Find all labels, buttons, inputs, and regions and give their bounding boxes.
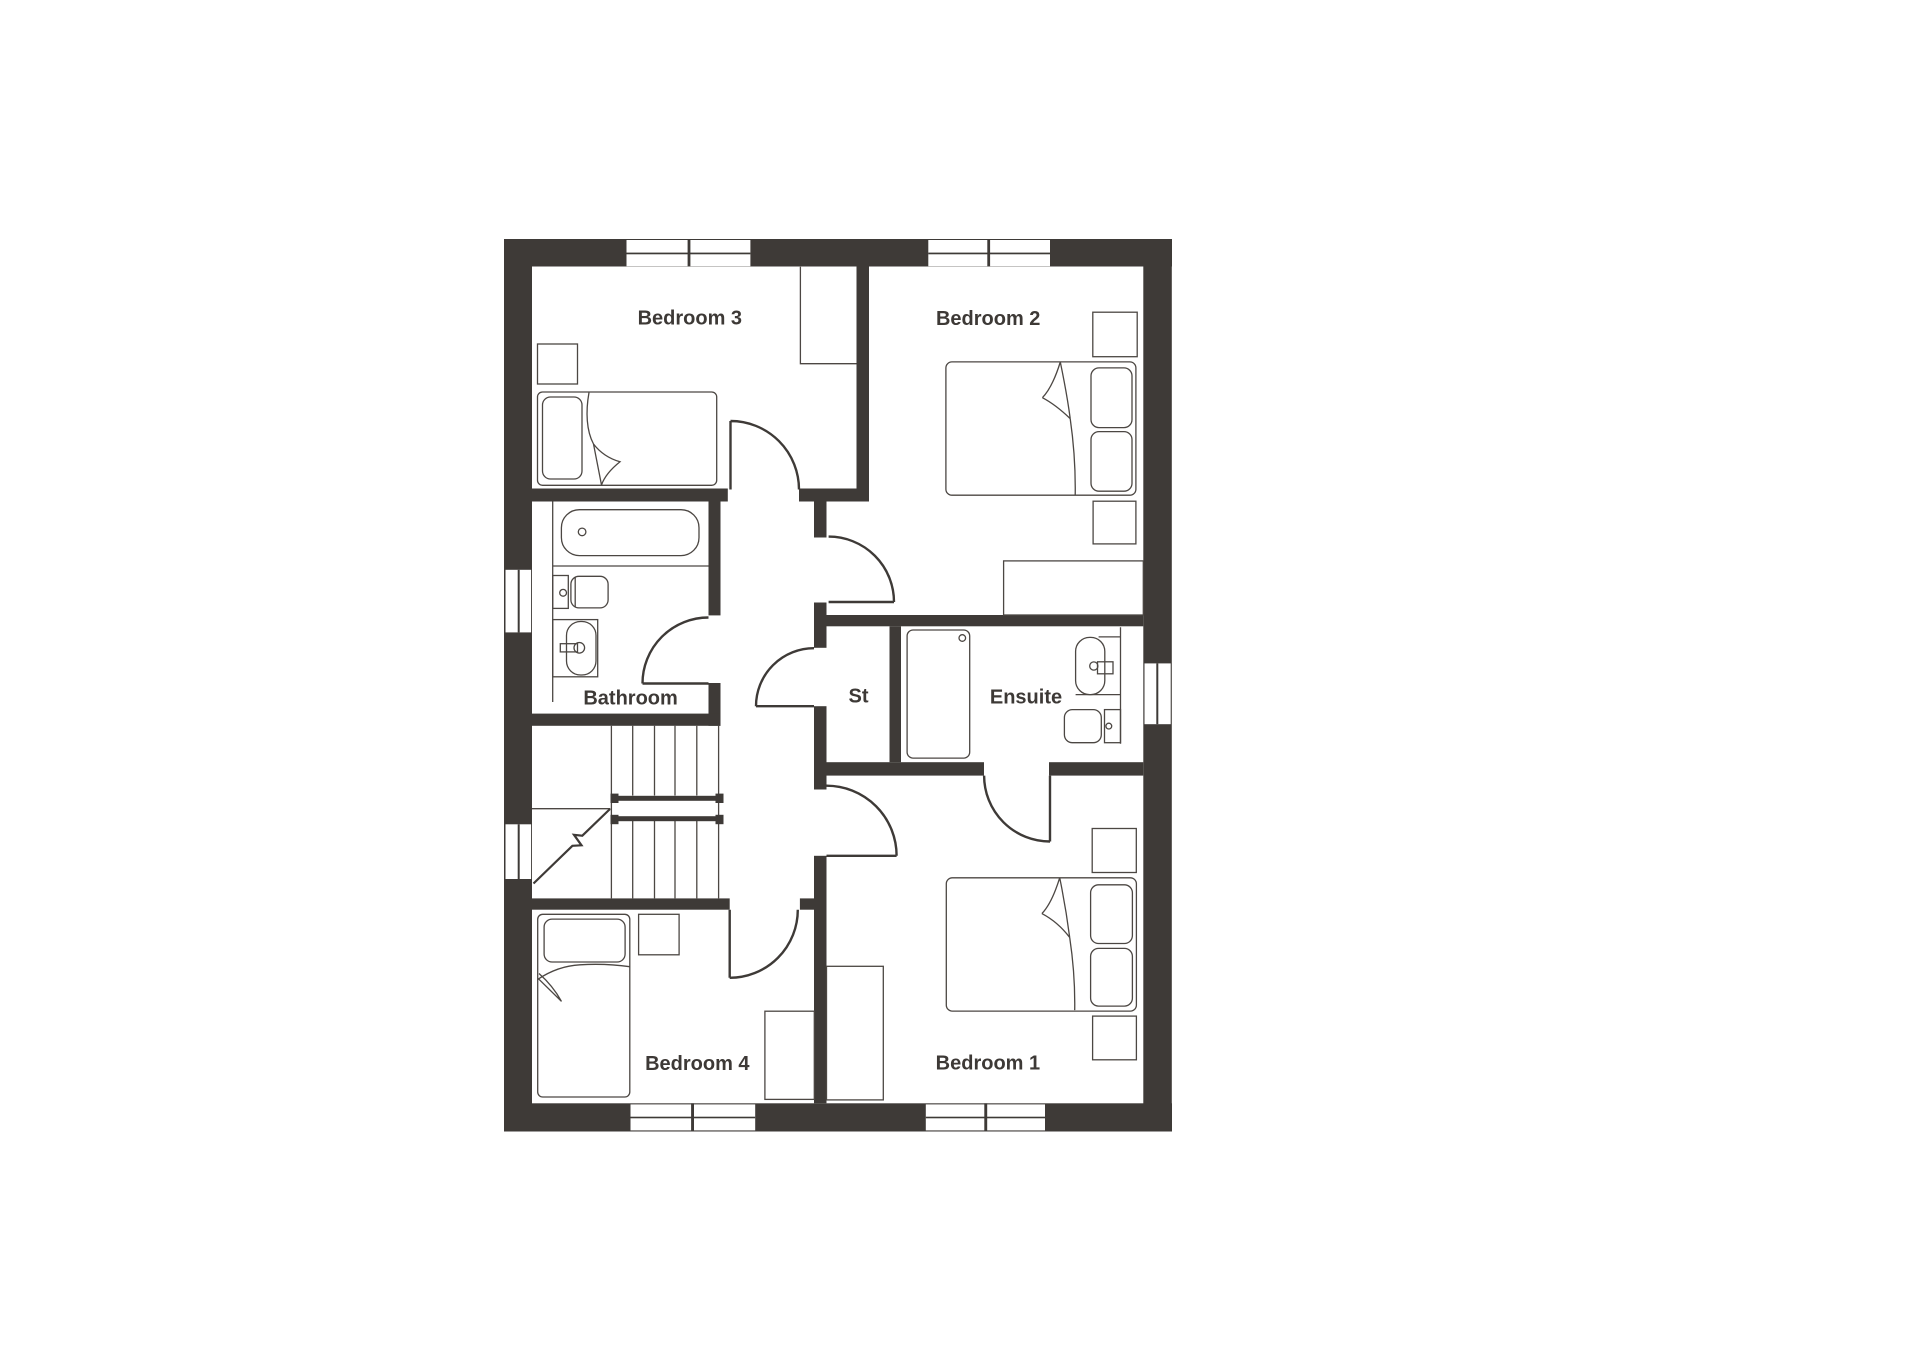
svg-text:Bathroom: Bathroom xyxy=(583,687,677,709)
svg-text:Bedroom 2: Bedroom 2 xyxy=(936,308,1040,330)
svg-text:Bedroom 1: Bedroom 1 xyxy=(936,1052,1040,1074)
svg-text:Bedroom 4: Bedroom 4 xyxy=(645,1053,750,1075)
svg-text:St: St xyxy=(849,686,869,708)
svg-text:Bedroom 3: Bedroom 3 xyxy=(638,308,742,330)
svg-text:Ensuite: Ensuite xyxy=(990,686,1062,708)
